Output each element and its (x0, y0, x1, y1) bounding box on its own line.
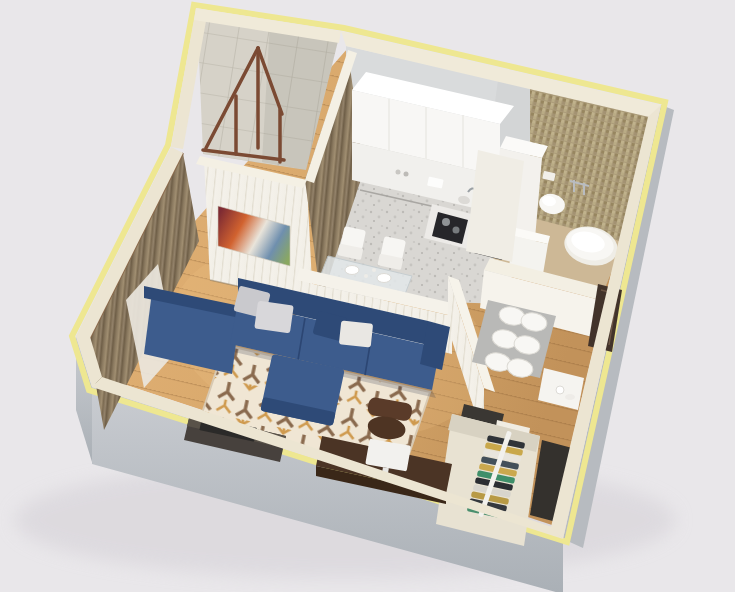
pillow-white (339, 320, 373, 347)
counter-bottle (396, 170, 401, 175)
plate (377, 274, 391, 283)
pillow-gray (254, 301, 294, 334)
floorplan-render (0, 0, 735, 592)
counter-bottle (404, 172, 409, 177)
plate (345, 266, 359, 275)
apartment-3d-scene (0, 0, 735, 592)
bowl (565, 394, 575, 400)
pot (453, 227, 460, 234)
vase (556, 386, 564, 394)
cup (372, 268, 376, 272)
pot (442, 218, 450, 226)
cup (364, 274, 368, 278)
